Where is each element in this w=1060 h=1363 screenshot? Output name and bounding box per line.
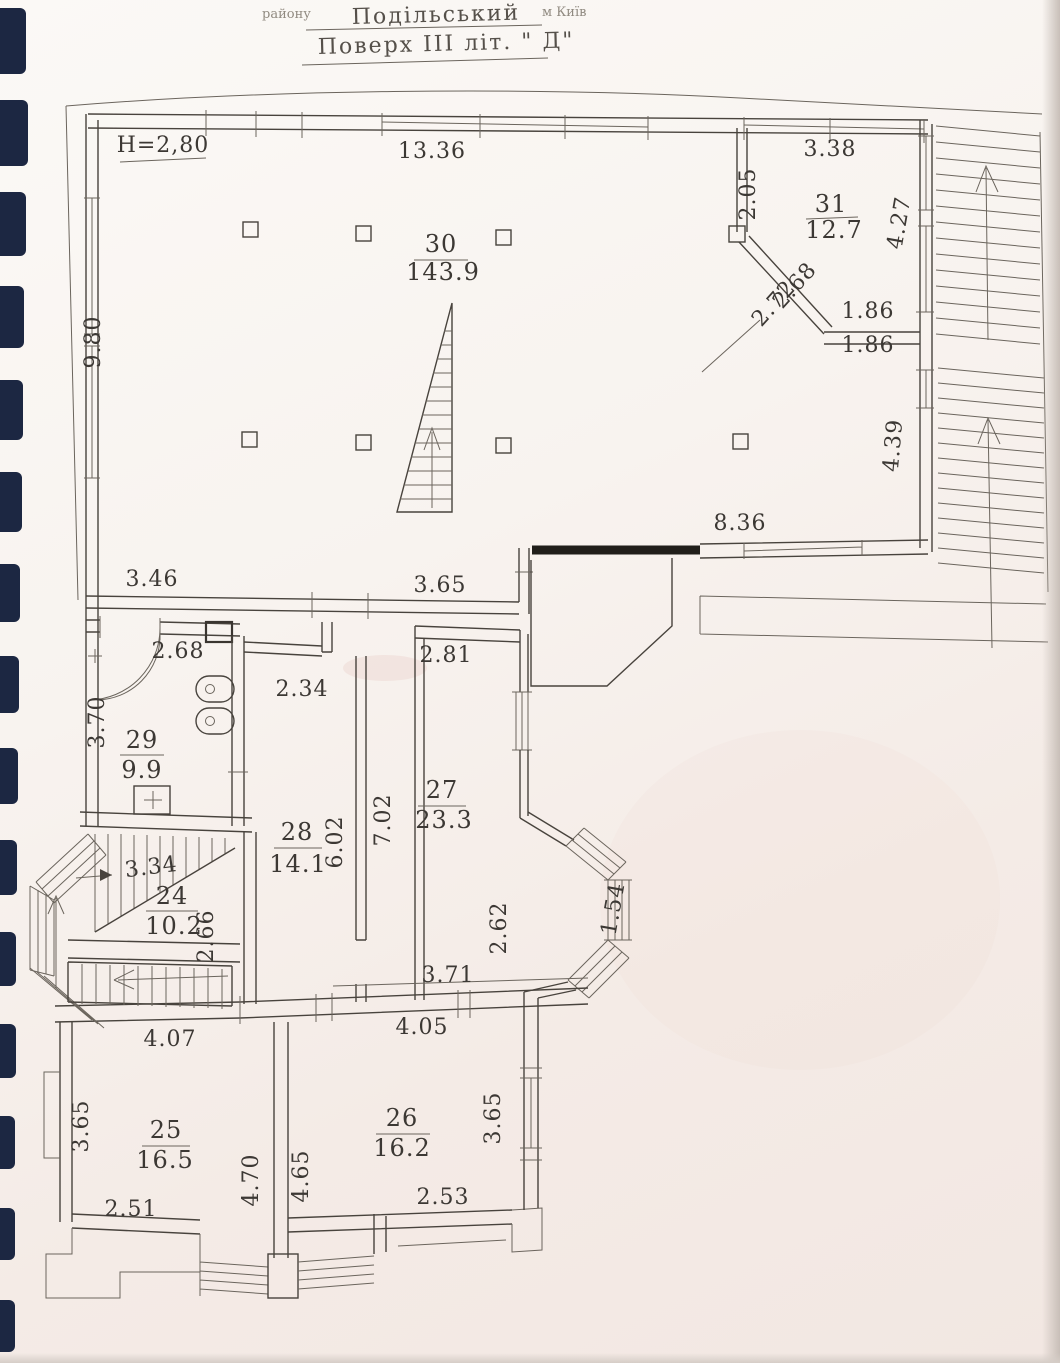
room-26-number: 26 bbox=[386, 1104, 419, 1132]
dim-top-main: 13.36 bbox=[398, 139, 466, 164]
room-26-area: 16.2 bbox=[373, 1134, 430, 1162]
dim-bay-side: 1.54 bbox=[597, 881, 631, 938]
bay-window-lower-left bbox=[30, 968, 104, 1028]
dim-r25-left: 3.65 bbox=[69, 1100, 94, 1153]
dim-partition-left: 4.70 bbox=[239, 1154, 264, 1207]
dim-top-right: 3.38 bbox=[804, 137, 857, 162]
dim-r26-top: 4.05 bbox=[396, 1015, 449, 1040]
raion-value: Подільський bbox=[352, 1, 521, 30]
dim-r29-left: 3.70 bbox=[85, 696, 110, 749]
dim-r30-bottom-mid: 3.65 bbox=[414, 573, 467, 598]
room-31-number: 31 bbox=[815, 190, 848, 218]
ceiling-height: H=2,80 bbox=[117, 133, 210, 158]
room-29-area: 9.9 bbox=[121, 756, 162, 784]
city-label: м Київ bbox=[542, 5, 586, 20]
dim-r31-right: 4.27 bbox=[883, 195, 917, 252]
room-31-area: 12.7 bbox=[805, 216, 862, 244]
stairs-up-arrow-bottom bbox=[978, 418, 1000, 648]
dim-r27-bottom: 3.71 bbox=[422, 963, 475, 988]
scan-bottom-shadow bbox=[0, 1353, 1060, 1363]
dim-r31-bottom-above: 1.86 bbox=[842, 299, 895, 324]
middle-bottom-wall bbox=[55, 978, 588, 1024]
floor-title: Поверх III літ. " Д" bbox=[318, 28, 575, 60]
dim-right-lower: 4.39 bbox=[879, 418, 909, 473]
raion-label: району bbox=[262, 7, 311, 22]
floor-plan-drawing: району Подільський м Київ Поверх III літ… bbox=[0, 0, 1060, 1363]
bay-window-upper bbox=[566, 828, 626, 880]
dim-hall-door: 2.34 bbox=[276, 677, 329, 702]
room-30-area: 143.9 bbox=[406, 258, 480, 286]
door-arc bbox=[90, 628, 160, 700]
stair-up-arrow bbox=[424, 428, 440, 508]
dim-left-wall: 9.80 bbox=[81, 316, 106, 369]
scanned-floor-plan-page: району Подільський м Київ Поверх III літ… bbox=[0, 0, 1060, 1363]
dim-r28-height: 6.02 bbox=[323, 816, 348, 869]
shaft-block bbox=[206, 622, 232, 642]
partition-25-26 bbox=[274, 1022, 288, 1258]
bottom-window-left bbox=[200, 1258, 268, 1296]
stairs-up-arrow-top bbox=[976, 166, 998, 340]
room-29-number: 29 bbox=[126, 726, 159, 754]
bottom-window-right bbox=[298, 1256, 374, 1289]
dim-r29-top: 2.68 bbox=[152, 639, 205, 664]
dim-r25-top: 4.07 bbox=[144, 1027, 197, 1052]
bay-window-lower bbox=[568, 940, 629, 998]
room-27-number: 27 bbox=[426, 776, 459, 804]
binding-marks bbox=[0, 8, 28, 1352]
dim-r26-right: 3.65 bbox=[481, 1092, 506, 1145]
header: району Подільський м Київ Поверх III літ… bbox=[262, 1, 586, 65]
room-25-number: 25 bbox=[150, 1116, 183, 1144]
outer-contour bbox=[66, 91, 1042, 600]
room-28-area: 14.1 bbox=[269, 850, 326, 878]
flight-arrow-left bbox=[114, 970, 228, 989]
room-25-area: 16.5 bbox=[136, 1146, 193, 1174]
scan-smudges bbox=[343, 655, 1000, 1070]
scan-edge-shadow bbox=[1042, 0, 1060, 1363]
room-28-number: 28 bbox=[281, 818, 314, 846]
dim-partition-right: 4.65 bbox=[289, 1150, 314, 1203]
dim-stair-flight: 3.34 bbox=[123, 852, 179, 883]
dim-r26-bottom: 2.53 bbox=[417, 1185, 470, 1210]
flight-arrow-right bbox=[100, 869, 112, 881]
interior-stair-triangle bbox=[397, 303, 452, 512]
window-pier bbox=[268, 1254, 298, 1298]
room-24-number: 24 bbox=[156, 882, 189, 910]
dim-r27-top: 2.81 bbox=[420, 643, 473, 668]
dim-r27-height: 7.02 bbox=[371, 794, 396, 847]
dim-r31-bottom-below: 1.86 bbox=[842, 333, 895, 358]
dim-r25-bottom: 2.51 bbox=[105, 1197, 158, 1222]
dim-r30-bottom-right: 8.36 bbox=[714, 511, 767, 536]
dim-r30-bottom-left: 3.46 bbox=[126, 567, 179, 592]
room-27-area: 23.3 bbox=[415, 806, 472, 834]
labels: H=2,80 13.36 30 143.9 9.80 4.39 8.36 3.4… bbox=[69, 133, 917, 1222]
flight-arrow-up bbox=[48, 896, 64, 988]
dim-r31-left: 2.05 bbox=[736, 168, 761, 221]
columns bbox=[242, 222, 748, 453]
dim-r24-right: 2.66 bbox=[194, 910, 219, 963]
dim-r27-inner-right: 2.62 bbox=[487, 902, 512, 955]
room-30-walls bbox=[84, 110, 934, 686]
room-30-number: 30 bbox=[425, 230, 458, 258]
